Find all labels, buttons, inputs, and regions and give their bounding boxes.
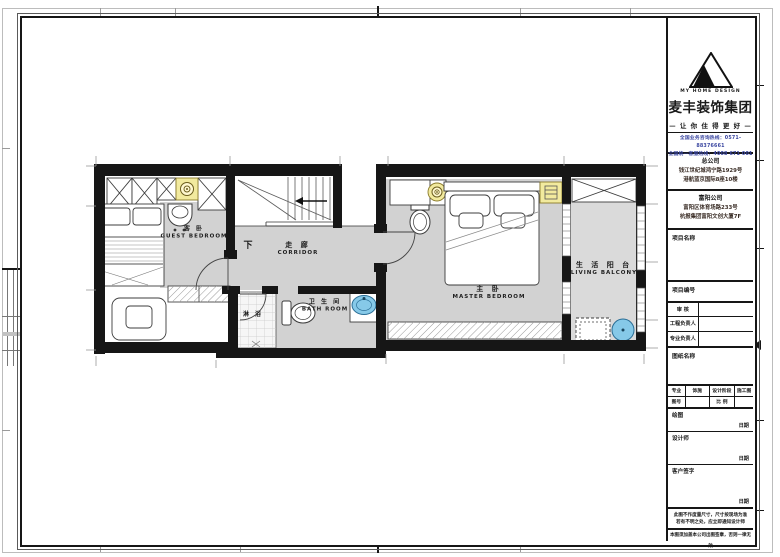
- review-label: 审 核: [668, 303, 699, 317]
- trim-mark: [2, 430, 10, 431]
- client-signature-box: 客户签字 日期: [668, 465, 753, 509]
- hotlines: 全国业务咨询热线：0571-88376661 全国统一客服热线：4008 671…: [668, 133, 753, 154]
- stage-value: 施工图: [735, 386, 753, 397]
- company-slogan: — 让 你 住 得 更 好 —: [668, 120, 753, 133]
- head-office-title: 总公司: [668, 157, 753, 167]
- note-line2: 若有不明之处，应立即通知设计师: [668, 519, 753, 526]
- designer-date-label: 日期: [739, 455, 749, 462]
- balcony-wardrobe: [572, 179, 636, 202]
- drawing-name-box: 图纸名称: [668, 348, 753, 386]
- toilet: [282, 301, 315, 325]
- guest-cabinet: [168, 286, 230, 302]
- floor-plan: [84, 148, 664, 370]
- project-name-box: 项目名称: [668, 230, 753, 282]
- project-name-label: 项目名称: [672, 233, 753, 242]
- master-lamp-icon: [428, 183, 446, 201]
- professional-manager-label: 专业负责人: [668, 332, 699, 346]
- branch-office: 富阳公司 富阳区体育场路233号 杭报集团富阳文创大厦7F: [668, 191, 753, 230]
- project-number-label: 项目编号: [672, 285, 753, 294]
- company-name: 麦丰装饰集团: [668, 96, 753, 120]
- master-pedestal-basin: [410, 205, 430, 234]
- master-low-cabinet: [388, 322, 562, 339]
- drawing-sheet: 客 卧 GUEST BEDROOM 走 廊 CORRIDOR 下 淋 浴 卫 生…: [0, 0, 780, 557]
- trim-mark: [2, 148, 10, 149]
- business-hotline: 全国业务咨询热线：0571-88376661: [668, 135, 753, 151]
- logo-triangle-icon: [689, 52, 733, 88]
- head-office-addr2: 港航蓝京国际8座10楼: [668, 176, 753, 185]
- drawing-no-label: 图号: [668, 397, 686, 408]
- master-bed: [444, 182, 540, 285]
- master-panel-icon: [540, 182, 562, 203]
- ceiling-lamp-icon: [176, 178, 198, 200]
- major-label: 专业: [668, 386, 686, 397]
- drawing-no-value: [686, 397, 710, 408]
- head-office: 总公司 钱江世纪城鸿宁路1929号 港航蓝京国际8座10楼: [668, 154, 753, 191]
- binding-margin-grid: [2, 268, 20, 366]
- bath-basin: [350, 290, 380, 322]
- scale-label: 比 例: [710, 397, 736, 408]
- logo-text: MY HOME DESIGN: [680, 89, 741, 94]
- stairs: [235, 177, 378, 226]
- stamp-note: 本图须加盖本公司出图签章，否则一律无效: [668, 530, 753, 542]
- client-date-label: 日期: [739, 498, 749, 505]
- guest-armchair: [112, 298, 166, 340]
- trim-mark: [377, 6, 379, 16]
- stage-label: 设计阶段: [710, 386, 736, 397]
- project-number-box: 项目编号: [668, 282, 753, 303]
- branch-office-addr1: 富阳区体育场路233号: [668, 204, 753, 213]
- review-table: 审 核 工程负责人 专业负责人: [668, 303, 753, 348]
- scale-value: [735, 397, 753, 408]
- company-logo: MY HOME DESIGN: [668, 18, 753, 96]
- drawing-name-label: 图纸名称: [672, 351, 753, 360]
- draftsman-box: 绘图 日期: [668, 409, 753, 432]
- trim-mark: [520, 8, 521, 16]
- major-value: 饰施: [686, 386, 710, 397]
- branch-office-title: 富阳公司: [668, 194, 753, 204]
- draftsman-date-label: 日期: [739, 422, 749, 429]
- project-manager-value: [699, 317, 753, 331]
- notes-box: 此图不作度量尺寸，尺寸按现场为准 若有不明之处，应立即通知设计师: [668, 509, 753, 530]
- title-block: MY HOME DESIGN 麦丰装饰集团 — 让 你 住 得 更 好 — 全国…: [666, 18, 753, 541]
- professional-manager-value: [699, 332, 753, 346]
- guest-bed: [98, 204, 164, 286]
- trim-mark: [175, 8, 176, 16]
- note-line1: 此图不作度量尺寸，尺寸按现场为准: [668, 512, 753, 519]
- spec-table: 专业 饰施 设计阶段 施工图 图号 比 例: [668, 386, 753, 409]
- designer-label: 设计师: [672, 434, 749, 442]
- branch-office-addr2: 杭报集团富阳文创大厦7F: [668, 213, 753, 222]
- trim-mark: [100, 8, 101, 16]
- trim-mark: [630, 8, 631, 16]
- project-manager-label: 工程负责人: [668, 317, 699, 331]
- draftsman-label: 绘图: [672, 411, 749, 419]
- client-signature-label: 客户签字: [672, 467, 749, 475]
- designer-box: 设计师 日期: [668, 432, 753, 465]
- review-value: [699, 303, 753, 317]
- head-office-addr1: 钱江世纪城鸿宁路1929号: [668, 167, 753, 176]
